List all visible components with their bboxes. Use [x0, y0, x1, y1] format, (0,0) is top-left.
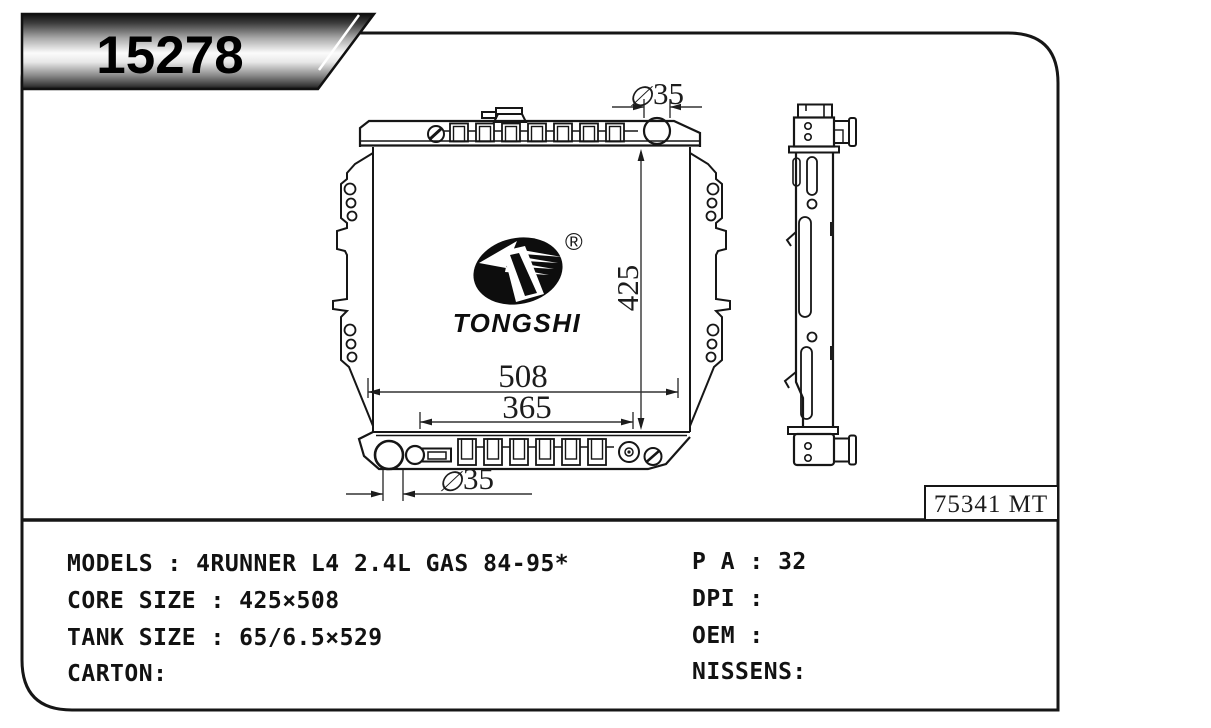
brand-text: TONGSHI: [453, 308, 581, 338]
spec-oem: OEM :: [692, 625, 764, 648]
tank-screw: [428, 126, 444, 142]
spec-core-size: CORE SIZE : 425×508: [67, 590, 340, 613]
radiator-side-view: [785, 105, 856, 466]
top-tank-ribs: [444, 124, 638, 142]
spec-carton: CARTON:: [67, 663, 167, 686]
outlet-pipe: [375, 441, 451, 469]
registered-mark: ®: [565, 229, 583, 256]
part-number-label: 15278: [22, 14, 374, 89]
ref-code-box: 75341 MT: [925, 486, 1058, 520]
right-bracket: [690, 153, 730, 426]
spec-models: MODELS : 4RUNNER L4 2.4L GAS 84-95*: [67, 553, 569, 576]
dim-bottom-dia-value: 35: [463, 461, 494, 496]
dim-top-dia-symbol: ∅: [628, 82, 654, 113]
datasheet-page: 75341 MT 15278: [0, 0, 1211, 728]
dimension-bottom-diameter: ∅ 35: [346, 461, 532, 501]
datasheet-canvas: 75341 MT 15278: [0, 0, 1211, 728]
drain-plug: [619, 442, 662, 465]
dim-bottom-dia-symbol: ∅: [438, 467, 464, 498]
dim-top-dia-value: 35: [653, 76, 684, 111]
spec-tank-size: TANK SIZE : 65/6.5×529: [67, 627, 383, 650]
part-number-text: 15278: [96, 26, 243, 85]
left-bracket: [333, 153, 373, 426]
dimension-core-height: 425: [610, 149, 645, 430]
dimension-inner-width: 365: [420, 390, 633, 429]
dim-inner-width-value: 365: [502, 390, 552, 426]
spec-pa: P A : 32: [692, 551, 807, 574]
tongshi-logo: ® TONGSHI: [453, 229, 583, 338]
dim-core-height-value: 425: [610, 265, 645, 312]
spec-nissens: NISSENS:: [692, 661, 807, 684]
dimension-top-diameter: ∅ 35: [612, 76, 702, 118]
ref-code-text: 75341 MT: [934, 491, 1048, 518]
spec-dpi: DPI :: [692, 588, 764, 611]
